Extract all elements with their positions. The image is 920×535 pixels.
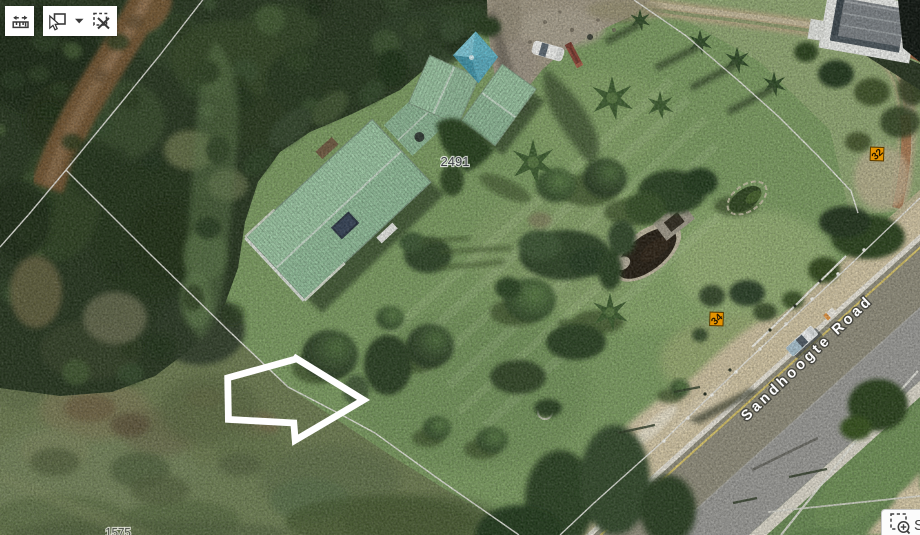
svg-text:S: S bbox=[914, 517, 920, 534]
svg-text:1575: 1575 bbox=[105, 528, 131, 535]
svg-text:2491: 2491 bbox=[441, 154, 470, 169]
